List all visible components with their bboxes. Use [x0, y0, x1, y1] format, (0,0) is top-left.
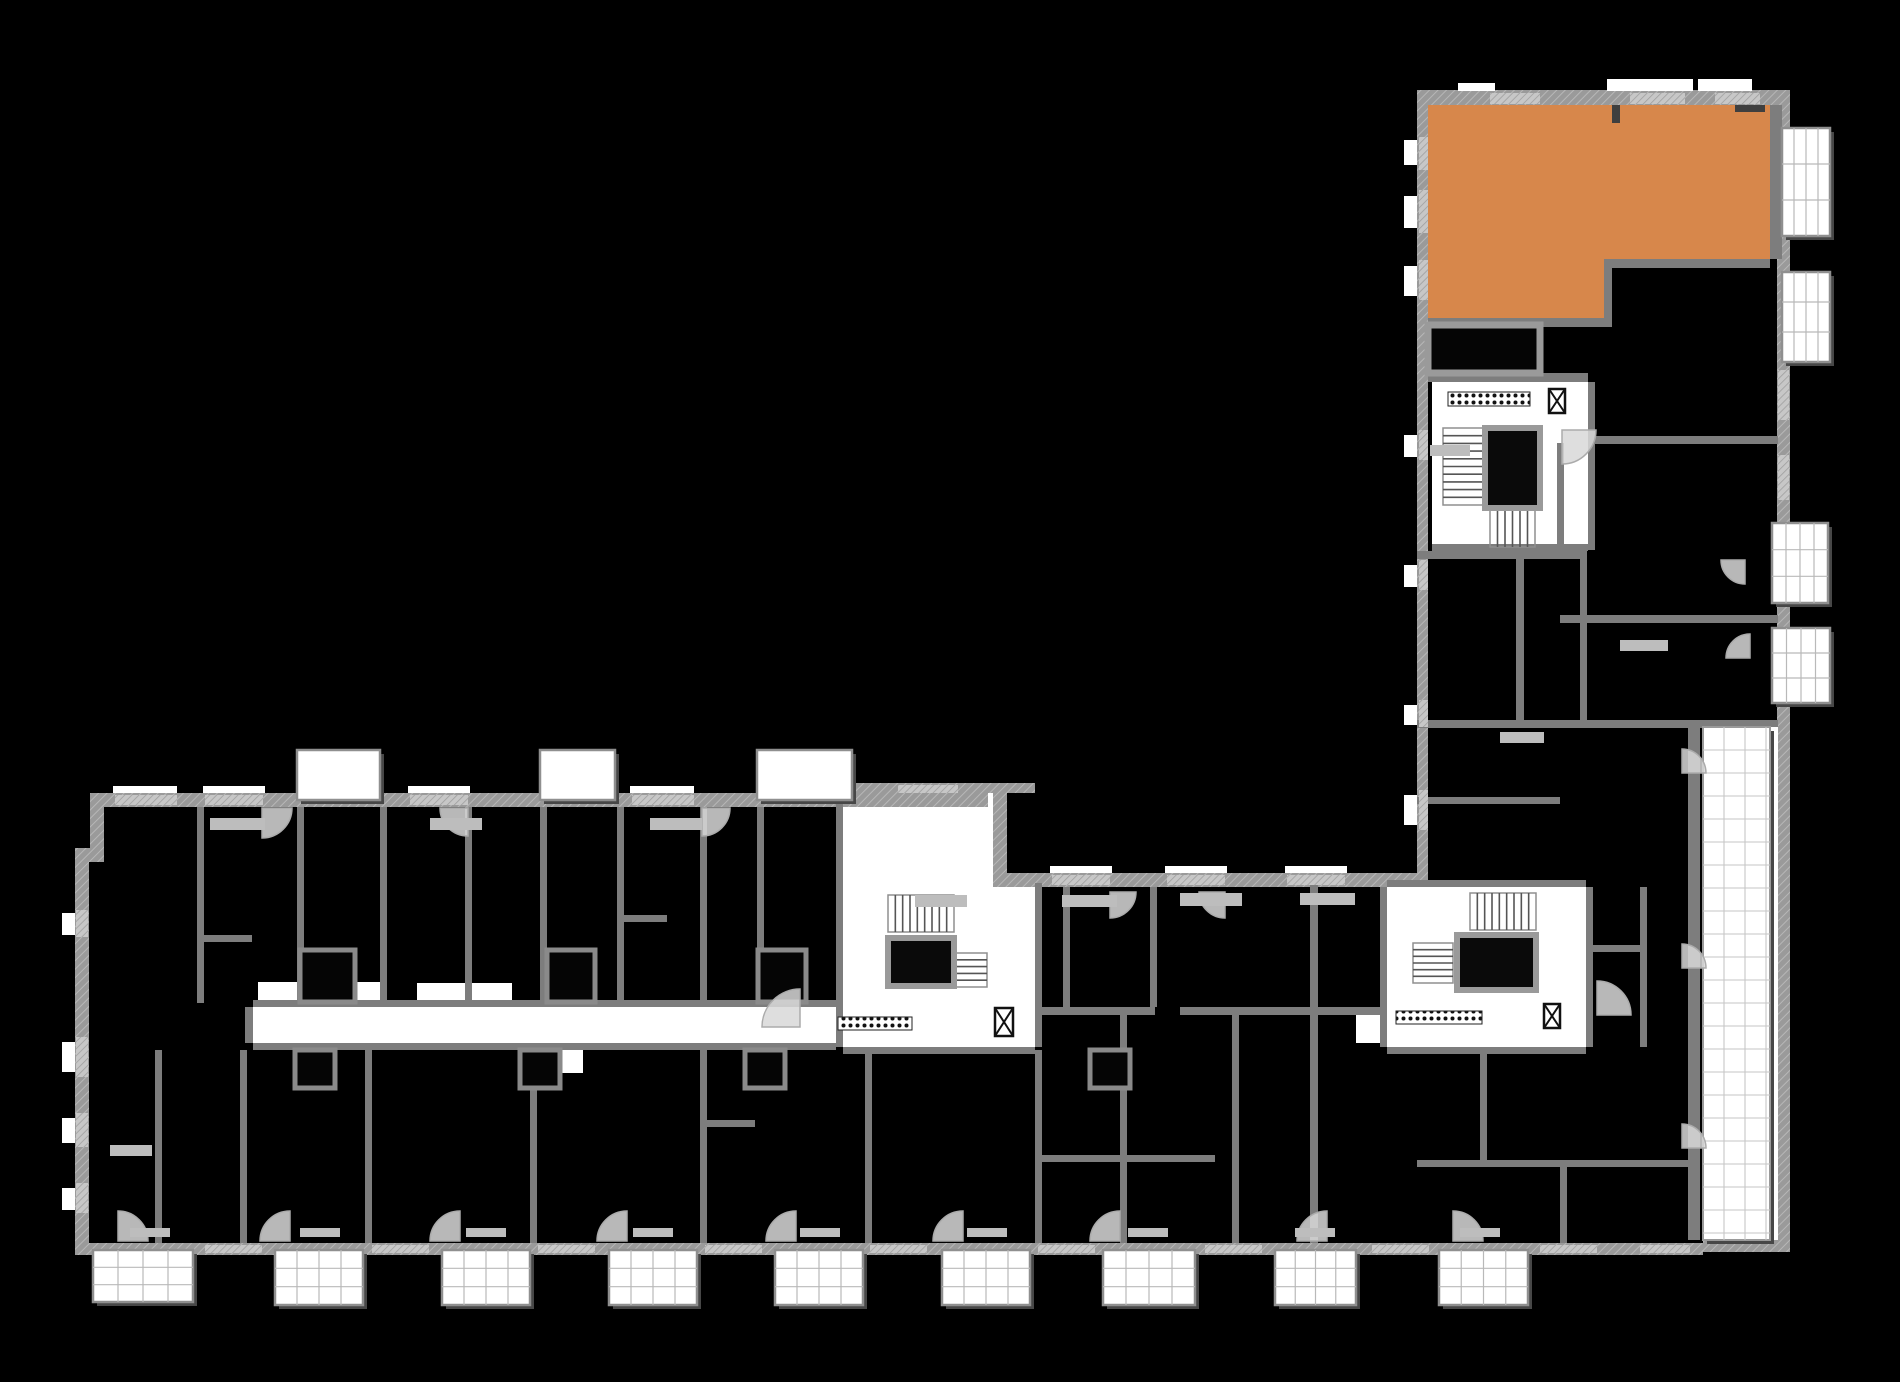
window-sill	[408, 786, 470, 793]
furniture-mark	[1500, 732, 1544, 743]
furniture-mark	[110, 1145, 152, 1156]
window-strip	[1205, 1245, 1262, 1253]
furniture-mark	[1180, 893, 1242, 906]
furniture-mark	[1295, 1228, 1335, 1237]
inner-wall	[155, 1050, 162, 1243]
window-strip	[632, 795, 694, 805]
stair-flight	[1490, 510, 1535, 547]
furniture-mark	[800, 1228, 840, 1237]
furniture-mark	[1128, 1228, 1168, 1237]
window-strip	[1052, 875, 1110, 885]
inner-wall	[1387, 880, 1586, 887]
inner-wall	[1035, 1050, 1042, 1243]
window-strip	[1715, 93, 1760, 104]
inner-wall	[197, 807, 204, 1003]
inner-wall	[1232, 1015, 1239, 1243]
furniture-mark	[300, 1228, 340, 1237]
elevator-icon	[1549, 389, 1565, 413]
window-strip	[1419, 430, 1428, 460]
furniture-mark	[430, 818, 482, 830]
window-strip	[372, 1245, 429, 1253]
window-sill	[1404, 435, 1417, 457]
inner-wall	[365, 1100, 372, 1150]
balcony-floor	[540, 750, 615, 800]
window-strip	[76, 1037, 88, 1077]
window-sill	[1698, 79, 1752, 91]
window-sill	[203, 786, 265, 793]
inner-wall	[1604, 259, 1612, 327]
window-strip	[1540, 1245, 1597, 1253]
balcony-plain	[297, 750, 384, 804]
inner-wall	[1150, 940, 1157, 1003]
window-sill	[62, 1188, 75, 1210]
window-sill	[1404, 565, 1417, 587]
doormat-icon	[1448, 392, 1530, 406]
inner-wall	[700, 1050, 707, 1243]
inner-wall	[1560, 615, 1778, 623]
balcony-plain	[757, 750, 856, 804]
inner-wall	[1588, 436, 1778, 444]
balcony	[942, 1250, 1034, 1309]
window-strip	[76, 910, 88, 937]
window-sill	[62, 1118, 75, 1143]
inner-wall	[836, 783, 843, 1047]
furniture-mark	[1062, 895, 1117, 907]
terrace	[1703, 727, 1774, 1244]
balcony	[1782, 272, 1834, 366]
window-sill	[630, 786, 694, 793]
elevator-shaft	[1457, 935, 1536, 990]
balcony	[1275, 1250, 1360, 1309]
window-sill	[1404, 795, 1417, 825]
window-sill	[1607, 79, 1693, 91]
balcony-floor	[297, 750, 380, 800]
window-strip	[1630, 93, 1685, 104]
inner-wall	[1380, 887, 1387, 1047]
balcony	[93, 1250, 197, 1306]
window-strip	[705, 1245, 762, 1253]
window-strip	[538, 1245, 595, 1253]
window-strip	[1419, 137, 1428, 170]
balcony	[275, 1250, 367, 1309]
furniture-mark	[633, 1228, 673, 1237]
window-sill	[1404, 196, 1417, 228]
window-strip	[1419, 260, 1428, 300]
inner-wall	[1180, 1007, 1387, 1015]
window-sill	[62, 1042, 75, 1072]
floor-plan-drawing	[0, 0, 1900, 1382]
furniture-mark	[210, 818, 265, 830]
inner-wall	[1586, 887, 1593, 1047]
stair-flight	[1413, 943, 1453, 983]
inner-wall	[1588, 382, 1595, 550]
furniture-mark	[915, 895, 967, 907]
balcony	[1772, 523, 1832, 607]
inner-wall	[1035, 1155, 1215, 1162]
inner-wall	[1417, 1160, 1688, 1167]
elevator-icon	[1544, 1004, 1560, 1028]
service-box	[1090, 1050, 1130, 1088]
window-strip	[76, 1183, 88, 1213]
stair-core-mid-upper	[843, 793, 993, 887]
window-sill	[1050, 866, 1112, 873]
furniture-mark	[466, 1228, 506, 1237]
window-sill	[62, 913, 75, 935]
corridor-main	[253, 1007, 843, 1043]
doormat-icon	[838, 1017, 912, 1030]
furniture-mark	[650, 818, 702, 830]
window-strip	[1778, 455, 1789, 500]
window-sill	[113, 786, 177, 793]
balcony	[442, 1250, 534, 1309]
furniture-mark	[130, 1228, 170, 1237]
elevator-icon	[995, 1008, 1013, 1036]
inner-wall	[465, 930, 472, 975]
balcony-floor	[757, 750, 852, 800]
furniture-mark	[1620, 640, 1668, 651]
inner-wall	[1035, 1007, 1155, 1015]
window-strip	[1490, 93, 1540, 104]
elevator-shaft	[888, 938, 954, 986]
window-strip	[115, 795, 177, 805]
window-sill	[1404, 140, 1417, 165]
window-sill	[1285, 866, 1347, 873]
inner-wall	[617, 807, 624, 1003]
window-sill	[1404, 266, 1417, 296]
window-strip	[1167, 875, 1225, 885]
framed-shaft-box	[1428, 325, 1540, 373]
window-strip	[1778, 370, 1789, 420]
furniture-mark	[1300, 893, 1355, 905]
window-strip	[1419, 560, 1428, 590]
outer-wall	[993, 793, 1007, 887]
window-strip	[1419, 790, 1428, 830]
window-strip	[870, 1245, 927, 1253]
service-box	[520, 1050, 560, 1088]
service-box	[295, 1050, 335, 1088]
balcony	[1439, 1250, 1532, 1309]
furniture-mark	[1430, 445, 1470, 456]
inner-wall	[1580, 558, 1587, 727]
inner-wall	[1586, 945, 1640, 952]
inner-wall	[1640, 887, 1647, 1047]
service-box	[300, 950, 355, 1002]
inner-wall	[1770, 105, 1782, 259]
window-strip	[1419, 700, 1428, 727]
doormat-icon	[1396, 1011, 1482, 1024]
window-strip	[1419, 190, 1428, 233]
balcony	[1772, 628, 1834, 707]
balcony-plain	[540, 750, 619, 804]
window-sill	[1404, 705, 1417, 725]
balcony	[1103, 1250, 1199, 1309]
inner-wall	[1480, 1054, 1487, 1160]
window-sill	[1165, 866, 1227, 873]
window-strip	[410, 795, 468, 805]
inner-wall	[1310, 880, 1318, 1243]
inner-wall	[1560, 1160, 1567, 1243]
inner-wall	[1516, 558, 1524, 727]
service-box	[547, 950, 595, 1002]
inner-wall	[700, 1120, 755, 1127]
inner-wall	[1688, 727, 1700, 1240]
outer-wall	[90, 793, 104, 855]
service-box	[745, 1050, 785, 1088]
elevator-shaft	[1485, 428, 1540, 508]
furniture-mark	[967, 1228, 1007, 1237]
window-strip	[1372, 1245, 1429, 1253]
inner-wall	[240, 1050, 247, 1243]
window-strip	[1038, 1245, 1095, 1253]
inner-wall	[617, 915, 667, 922]
balcony	[609, 1250, 701, 1309]
window-sill	[1458, 83, 1495, 91]
floor-plan-stage	[0, 0, 1900, 1382]
wall-stub	[1612, 105, 1620, 123]
window-strip	[1640, 1245, 1690, 1253]
terrace-floor	[1703, 727, 1770, 1240]
window-strip	[205, 795, 263, 805]
window-strip	[76, 1113, 88, 1147]
inner-wall	[1612, 259, 1770, 268]
balcony	[775, 1250, 867, 1309]
inner-wall	[1387, 1047, 1586, 1054]
furniture-mark	[1460, 1228, 1500, 1237]
balcony	[1782, 128, 1834, 240]
window-strip	[205, 1245, 262, 1253]
inner-wall	[1035, 883, 1042, 1047]
window-strip	[898, 785, 958, 793]
inner-wall	[380, 807, 387, 1003]
inner-wall	[245, 1007, 253, 1043]
inner-wall	[197, 935, 252, 942]
inner-wall	[865, 1050, 872, 1243]
wall-stub	[1735, 105, 1765, 112]
inner-wall	[1417, 797, 1560, 804]
window-strip	[1287, 875, 1345, 885]
